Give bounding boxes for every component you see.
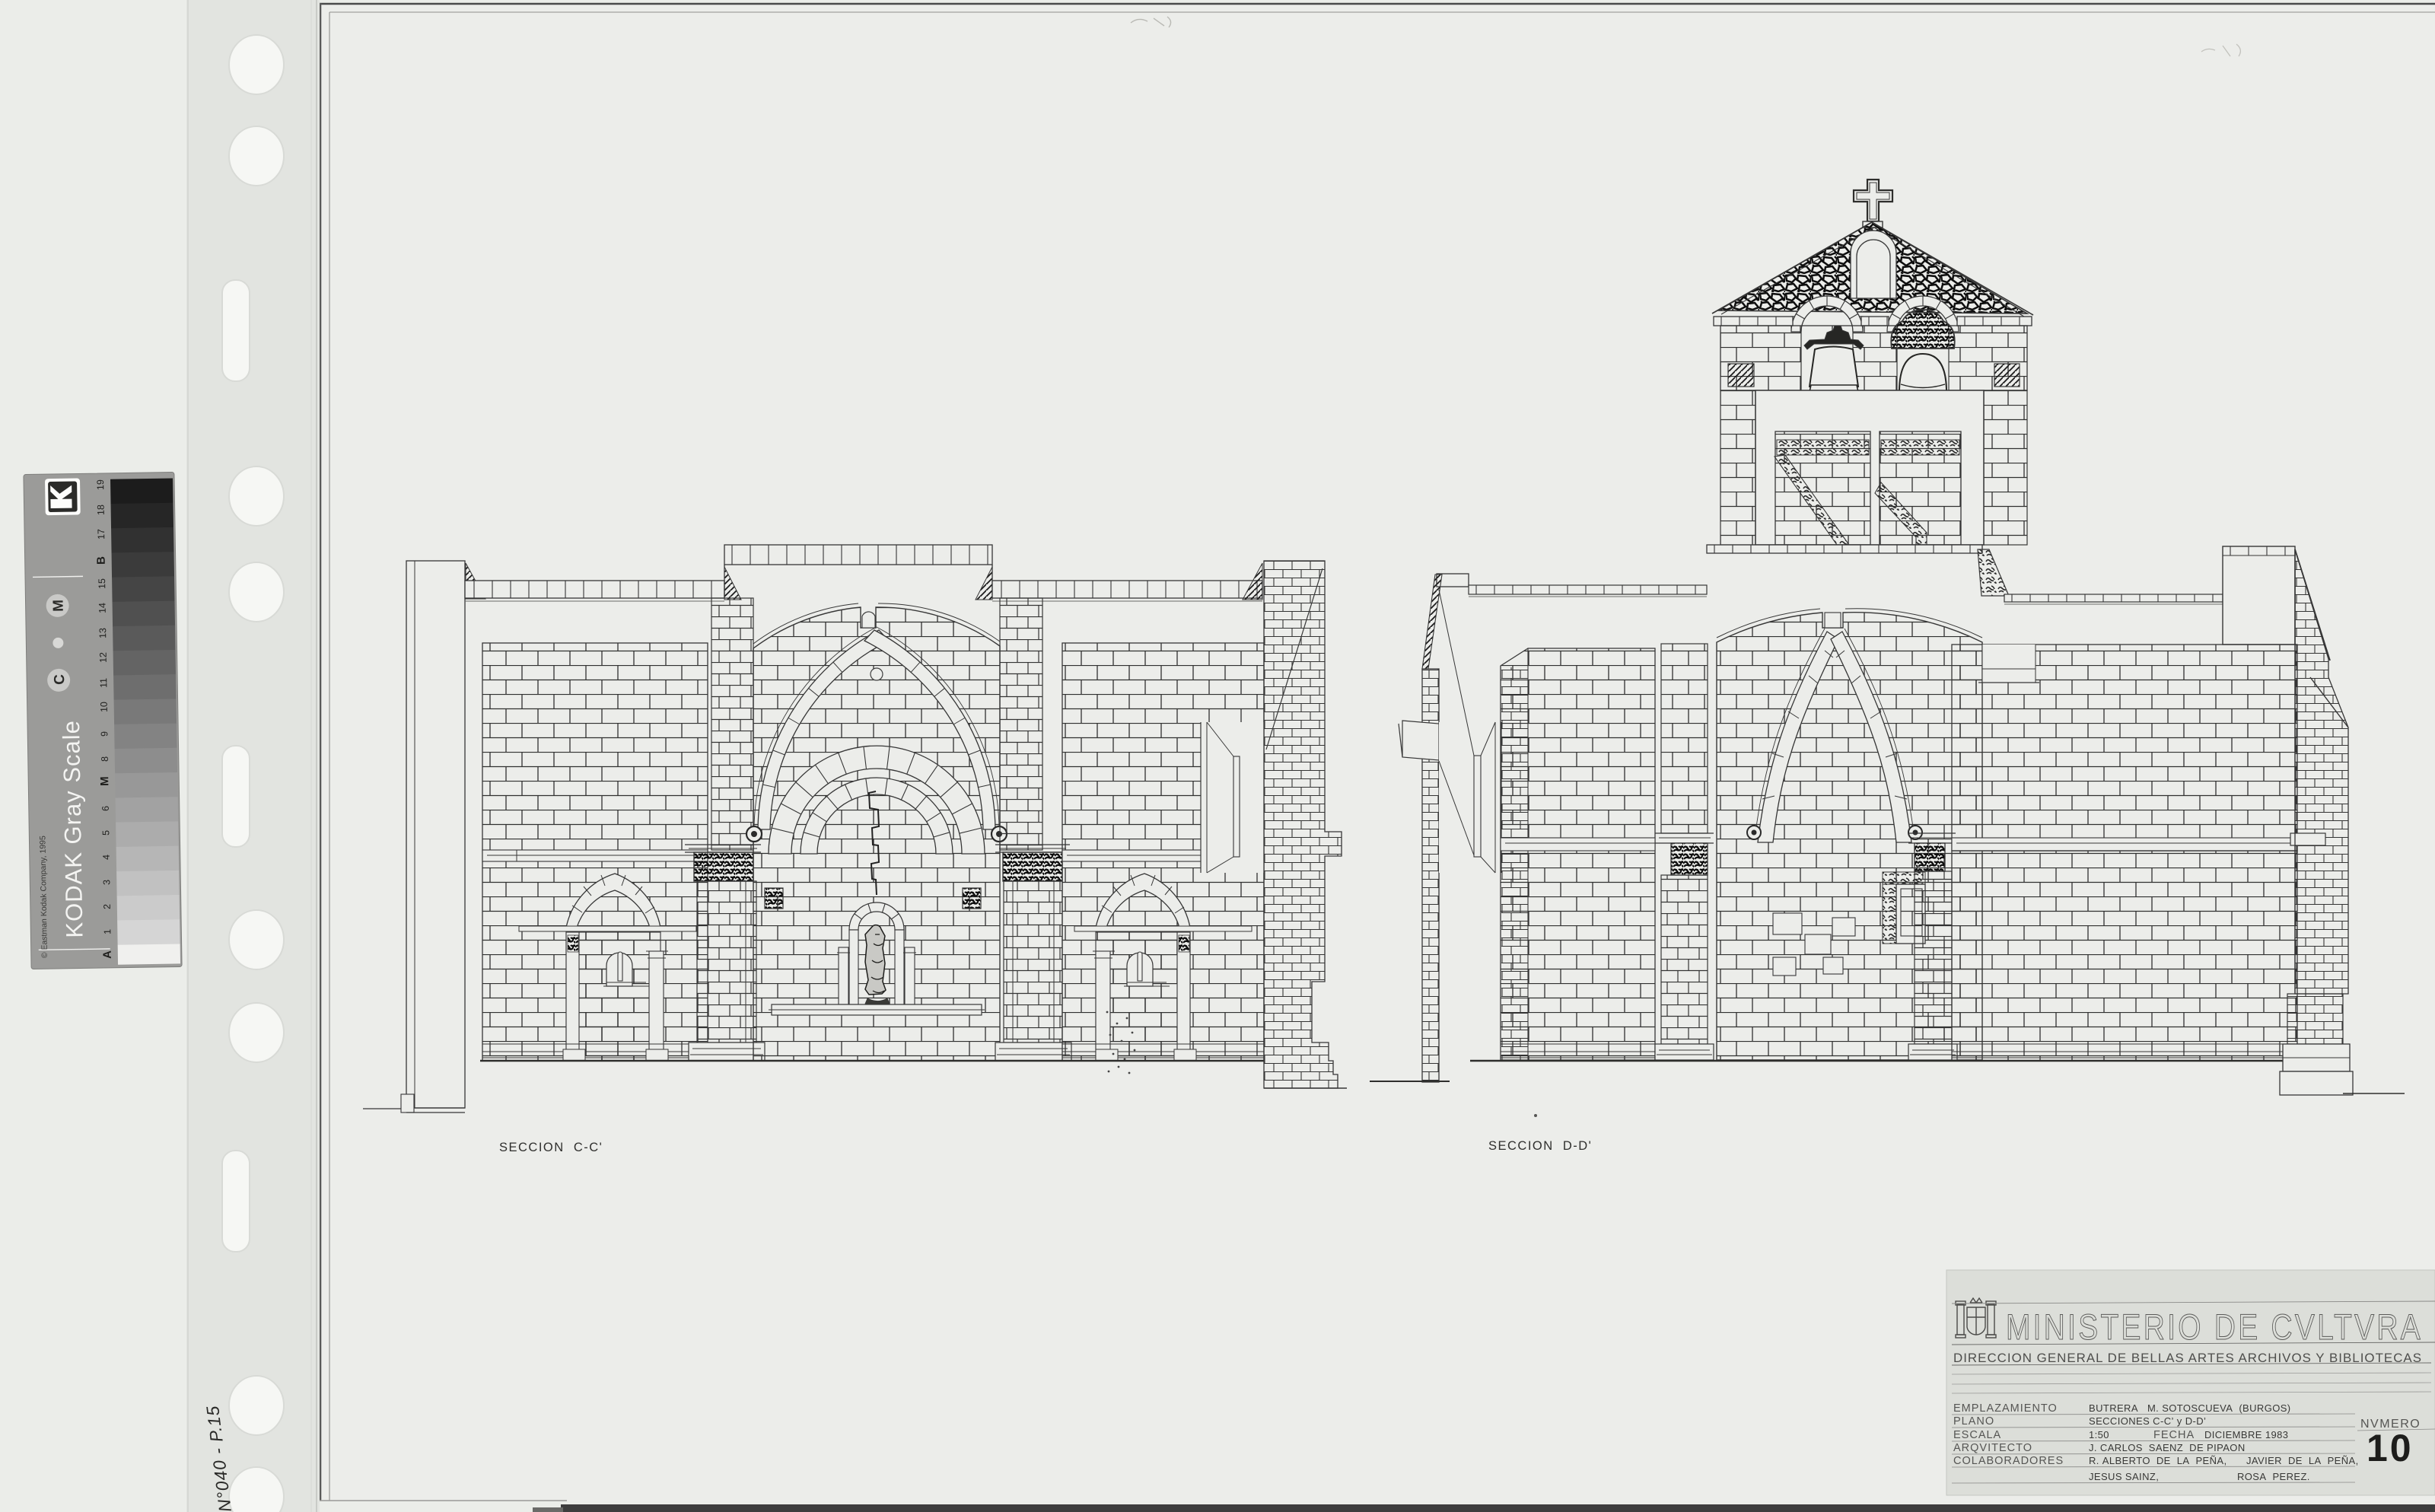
svg-text:9: 9 — [99, 731, 110, 737]
svg-text:10: 10 — [99, 702, 110, 712]
svg-text:M: M — [50, 600, 66, 612]
svg-text:M: M — [98, 776, 111, 786]
svg-text:KODAK Gray Scale: KODAK Gray Scale — [58, 720, 88, 938]
svg-text:15: 15 — [97, 578, 107, 589]
svg-text:DICIEMBRE 1983: DICIEMBRE 1983 — [2204, 1429, 2288, 1440]
svg-text:PLANO: PLANO — [1953, 1415, 1994, 1428]
svg-text:1:50: 1:50 — [2089, 1429, 2109, 1440]
svg-text:5: 5 — [100, 830, 111, 836]
svg-text:4: 4 — [101, 855, 112, 860]
svg-text:12: 12 — [98, 652, 109, 663]
svg-text:C: C — [52, 674, 68, 685]
svg-text:ESCALA: ESCALA — [1953, 1429, 2001, 1441]
svg-text:JAVIER DE LA PEÑA,: JAVIER DE LA PEÑA, — [2246, 1455, 2359, 1466]
svg-text:BUTRERA M. SOTOSCUEVA (BURG: BUTRERA M. SOTOSCUEVA (BURGOS) — [2089, 1402, 2291, 1414]
svg-text:B: B — [95, 556, 108, 565]
svg-text:13: 13 — [97, 628, 108, 638]
svg-text:FECHA: FECHA — [2153, 1429, 2195, 1441]
svg-text:SECCIONES C-C’ y D-D’: SECCIONES C-C’ y D-D’ — [2089, 1415, 2206, 1427]
svg-text:8: 8 — [100, 756, 110, 762]
svg-text:JESUS SAINZ,: JESUS SAINZ, — [2089, 1471, 2159, 1482]
svg-text:A: A — [101, 950, 114, 959]
svg-text:© Eastman Kodak Company, 1995: © Eastman Kodak Company, 1995 — [38, 836, 49, 958]
svg-text:ARQVITECTO: ARQVITECTO — [1953, 1442, 2032, 1454]
svg-text:17: 17 — [96, 529, 107, 540]
svg-text:11: 11 — [98, 678, 109, 688]
svg-text:6: 6 — [100, 806, 111, 811]
svg-text:EMPLAZAMIENTO: EMPLAZAMIENTO — [1953, 1402, 2058, 1415]
svg-text:18: 18 — [96, 505, 107, 515]
svg-text:1: 1 — [102, 929, 113, 934]
svg-text:MINISTERIO DE CVLTVRA: MINISTERIO DE CVLTVRA — [2006, 1307, 2423, 1347]
svg-text:3: 3 — [101, 880, 112, 885]
svg-text:SECCION C-C': SECCION C-C' — [499, 1141, 603, 1154]
svg-text:19: 19 — [95, 479, 106, 490]
svg-text:COLABORADORES: COLABORADORES — [1953, 1455, 2064, 1467]
svg-text:14: 14 — [97, 603, 108, 613]
svg-text:10: 10 — [2367, 1427, 2414, 1469]
svg-text:R. ALBERTO DE LA PEÑA,: R. ALBERTO DE LA PEÑA, — [2089, 1455, 2227, 1466]
svg-text:SECCION D-D': SECCION D-D' — [1488, 1139, 1592, 1153]
svg-text:ROSA PEREZ.: ROSA PEREZ. — [2237, 1471, 2310, 1482]
svg-text:2: 2 — [102, 904, 113, 909]
svg-text:J. CARLOS SAENZ DE PIPAON: J. CARLOS SAENZ DE PIPAON — [2089, 1442, 2246, 1453]
